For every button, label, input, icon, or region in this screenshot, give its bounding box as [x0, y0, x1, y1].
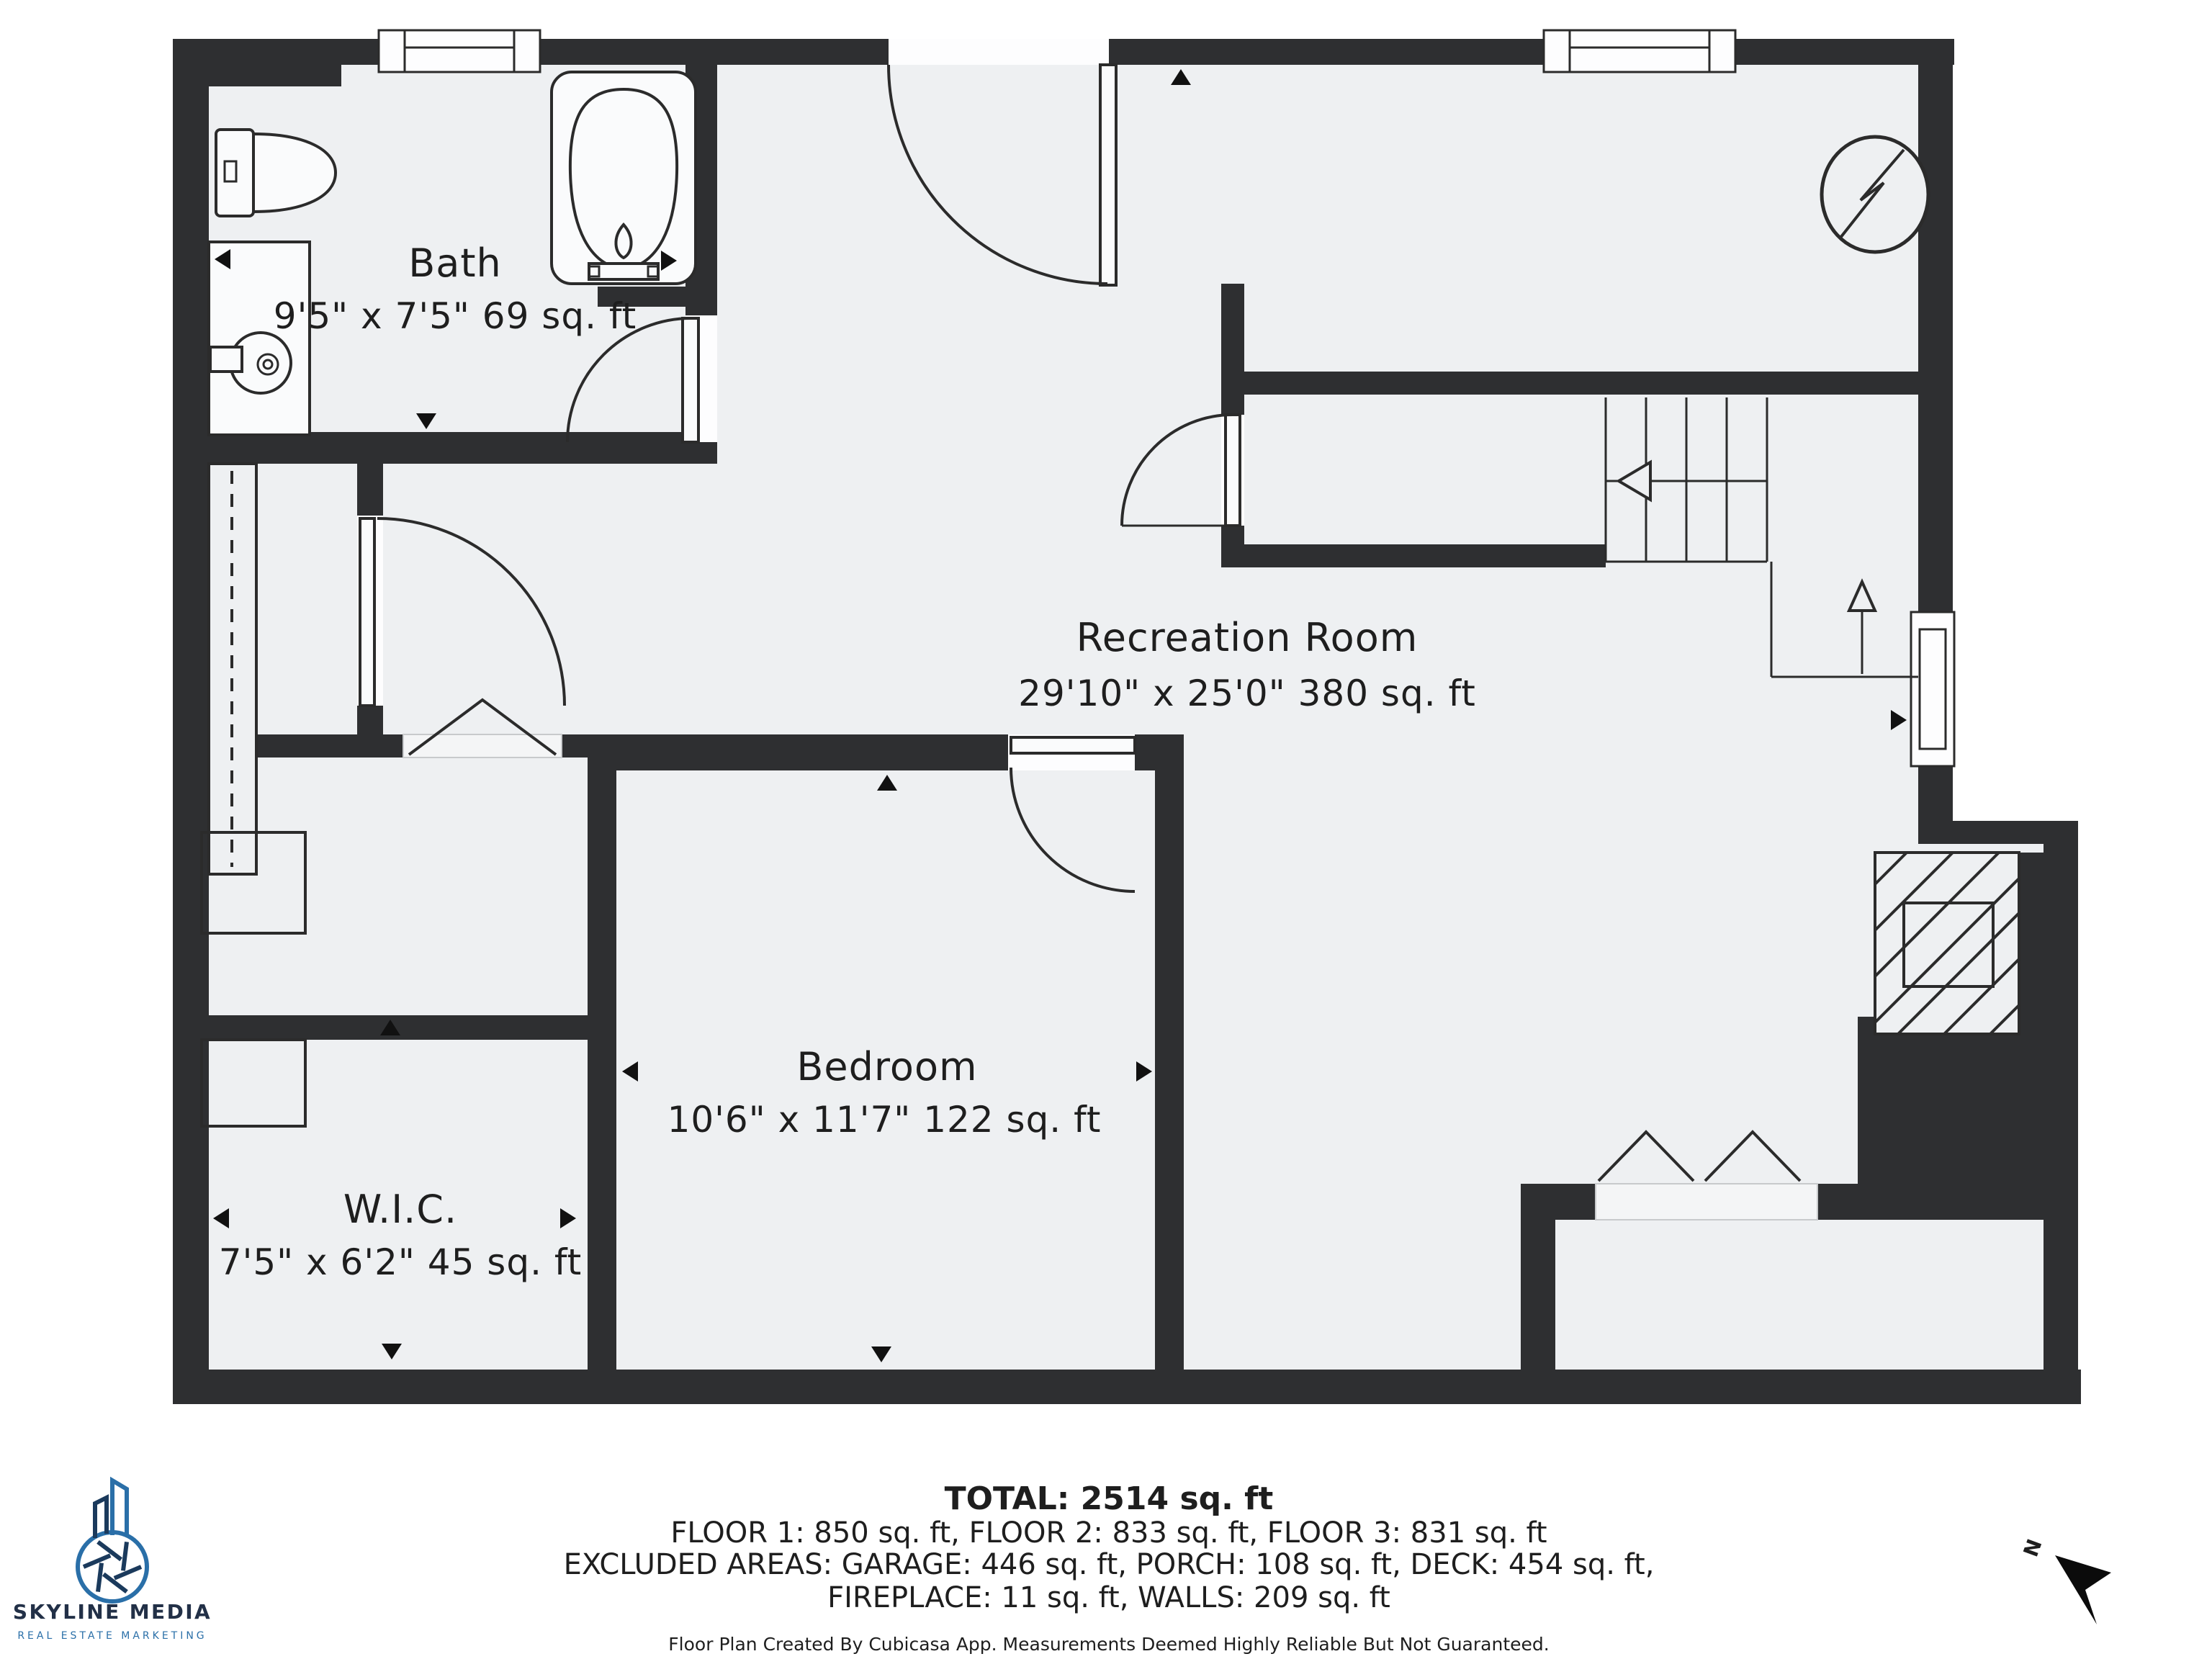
- window-bath: [379, 30, 540, 72]
- bedroom-dims: 10'6" x 11'7" 122 sq. ft: [667, 1099, 1102, 1141]
- summary-excluded-2: FIREPLACE: 11 sq. ft, WALLS: 209 sq. ft: [827, 1581, 1390, 1614]
- bath-label: Bath: [408, 240, 502, 286]
- floor-plan-canvas: Bath 9'5" x 7'5" 69 sq. ft Recreation Ro…: [0, 0, 2212, 1659]
- summary-excluded-1: EXCLUDED AREAS: GARAGE: 446 sq. ft, PORC…: [564, 1548, 1655, 1581]
- bath-dims: 9'5" x 7'5" 69 sq. ft: [274, 295, 637, 337]
- electrical-panel-icon: [1822, 137, 1928, 252]
- bathtub-fixture: [552, 72, 696, 284]
- summary-disclaimer: Floor Plan Created By Cubicasa App. Meas…: [668, 1634, 1549, 1655]
- wic-label: W.I.C.: [343, 1187, 457, 1232]
- wic-dims: 7'5" x 6'2" 45 sq. ft: [219, 1241, 582, 1283]
- north-label: N: [2019, 1536, 2047, 1560]
- bedroom-label: Bedroom: [796, 1044, 977, 1089]
- recreation-dims: 29'10" x 25'0" 380 sq. ft: [1018, 673, 1476, 714]
- aperture-logo-icon: [78, 1480, 147, 1601]
- recreation-label: Recreation Room: [1076, 615, 1419, 660]
- fireplace: [1875, 853, 2019, 1034]
- window-right-wall: [1911, 612, 1954, 766]
- north-arrow-icon: N: [2019, 1536, 2111, 1624]
- summary-block: TOTAL: 2514 sq. ft FLOOR 1: 850 sq. ft, …: [564, 1480, 1655, 1655]
- logo-title: SKYLINE MEDIA: [13, 1600, 212, 1624]
- summary-floors: FLOOR 1: 850 sq. ft, FLOOR 2: 833 sq. ft…: [670, 1516, 1547, 1550]
- logo-subtitle: REAL ESTATE MARKETING: [17, 1630, 207, 1642]
- summary-total: TOTAL: 2514 sq. ft: [945, 1480, 1274, 1517]
- sink-vanity-fixture: [209, 242, 310, 435]
- window-top-right: [1544, 30, 1735, 72]
- skyline-media-logo: SKYLINE MEDIA REAL ESTATE MARKETING: [13, 1480, 212, 1642]
